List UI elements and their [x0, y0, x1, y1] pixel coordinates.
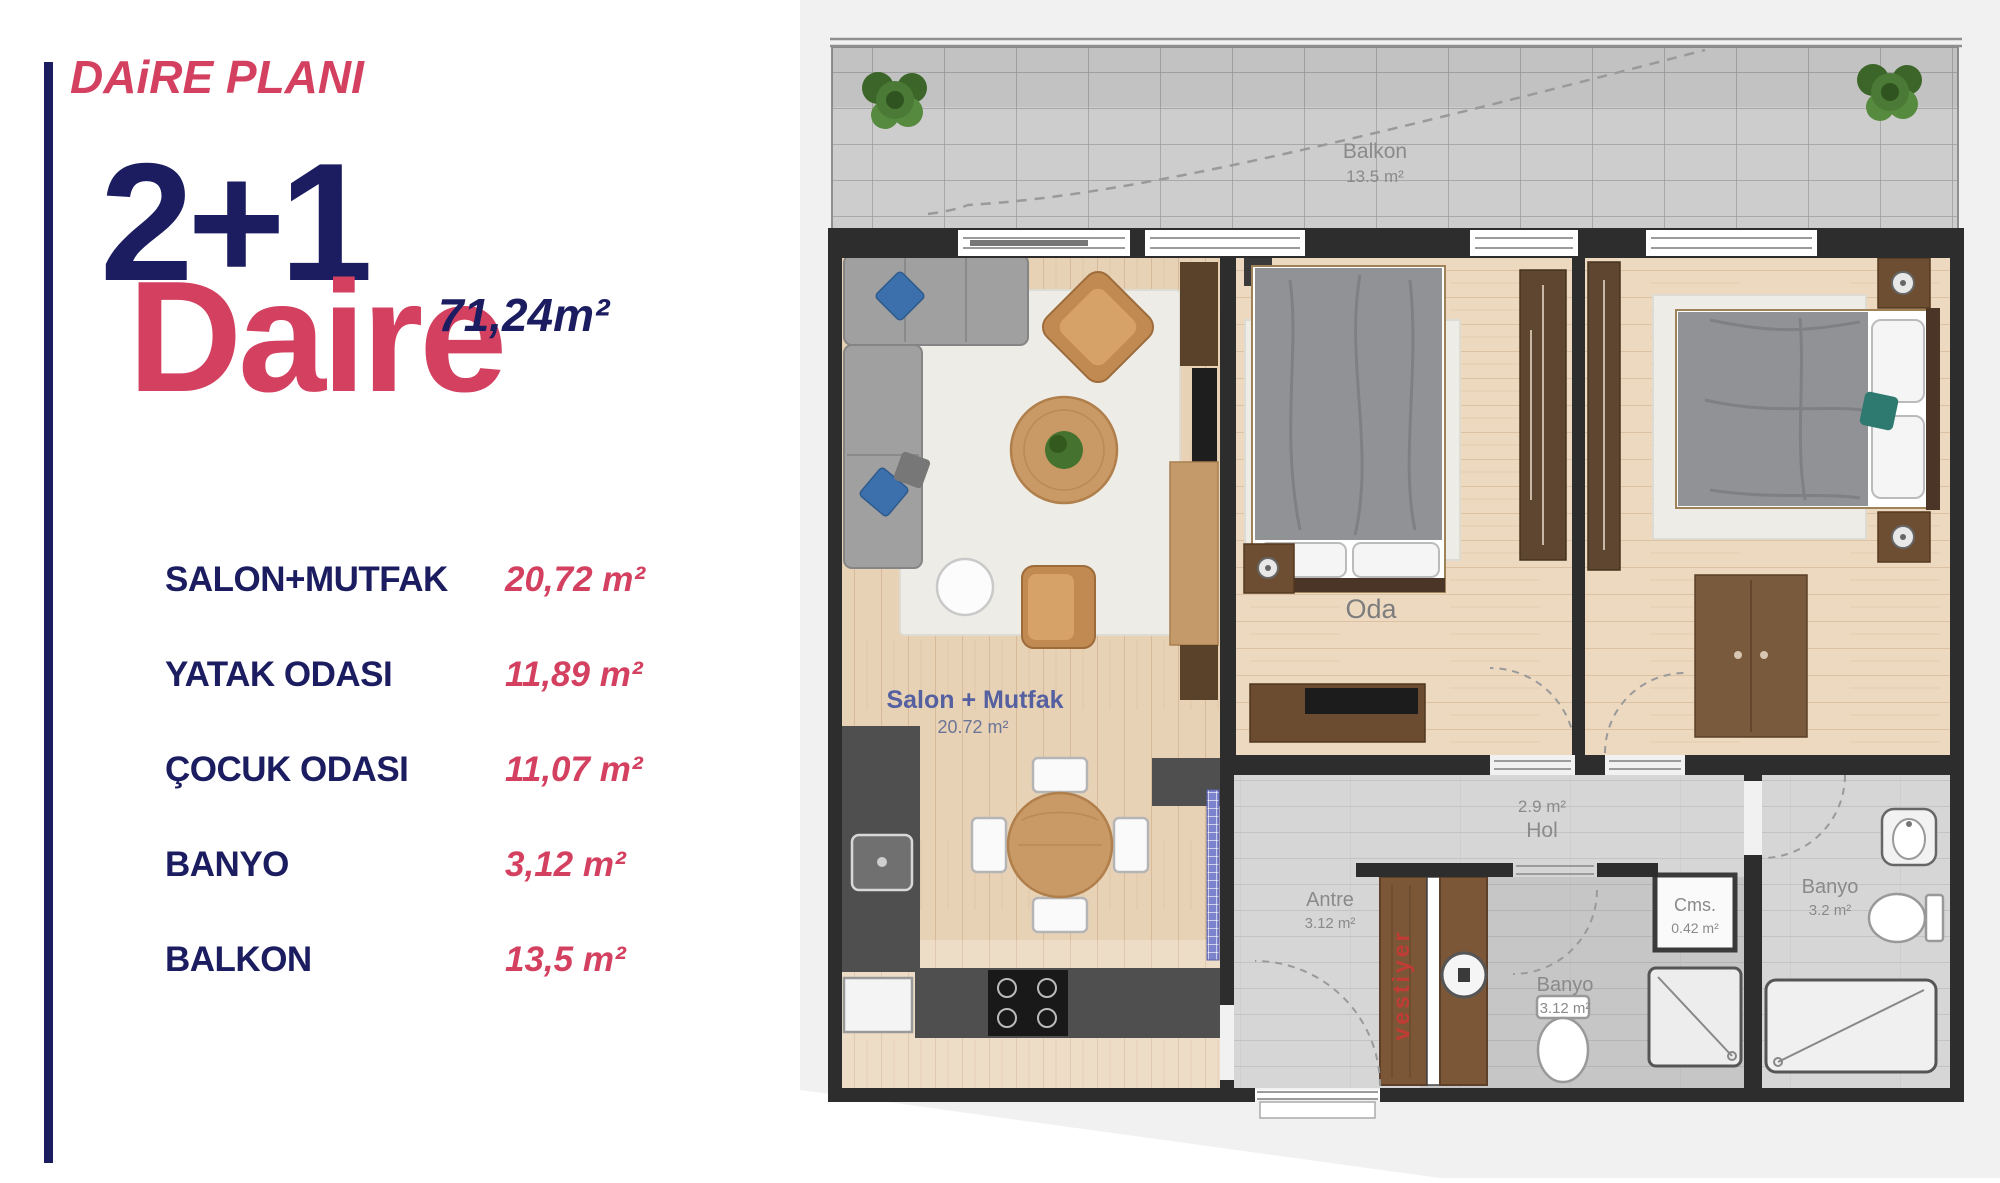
room-area: 3,12 m²: [505, 845, 626, 885]
vestiyer-label: vestiyer: [1388, 930, 1414, 1041]
closet-label: Cms.: [1674, 895, 1716, 915]
room-label: BALKON: [165, 940, 312, 980]
entry-label: Antre: [1306, 889, 1354, 911]
room-row-banyo: BANYO 3,12 m²: [165, 845, 725, 940]
balcony-area: 13.5 m²: [1346, 167, 1404, 186]
bath2-area-label: 3.2 m²: [1809, 902, 1852, 919]
sliding-door-panel: [970, 240, 1088, 246]
shower-icon: [1649, 968, 1741, 1066]
balcony-label: Balkon: [1343, 140, 1407, 163]
room-area: 11,07 m²: [505, 750, 643, 790]
bed: [1676, 308, 1940, 510]
chair: [972, 818, 1006, 872]
room-row-yatak: YATAK ODASI 11,89 m²: [165, 655, 725, 750]
dresser: [1695, 575, 1807, 737]
cabinet: [844, 978, 912, 1032]
chair: [1033, 898, 1087, 932]
balcony: Balkon 13.5 m²: [830, 39, 1962, 230]
desk: [1250, 684, 1425, 742]
nightstand: [1878, 512, 1930, 562]
toilet-icon: [1869, 894, 1943, 942]
oda-label: Oda: [1345, 594, 1397, 624]
chair: [1114, 818, 1148, 872]
headboard: [1926, 308, 1940, 510]
nightstand: [1878, 258, 1930, 308]
room-row-balkon: BALKON 13,5 m²: [165, 940, 725, 1035]
closet-area: 0.42 m²: [1671, 920, 1719, 936]
room-label: YATAK ODASI: [165, 655, 392, 695]
backsplash: [1207, 790, 1219, 960]
coffee-table: [1011, 397, 1117, 503]
total-area: 71,24m²: [438, 288, 609, 342]
stove: [988, 970, 1068, 1036]
chair: [1033, 758, 1087, 792]
cms-closet: Cms. 0.42 m²: [1655, 875, 1735, 950]
room-row-salon: SALON+MUTFAK 20,72 m²: [165, 560, 725, 655]
bath1-label: Banyo: [1537, 974, 1594, 996]
room-area: 11,89 m²: [505, 655, 643, 695]
floor-plan-panel: Balkon 13.5 m²: [800, 0, 2000, 1178]
living-area-label: 20.72 m²: [937, 717, 1008, 737]
tv: [1305, 688, 1418, 714]
nightstand: [1244, 544, 1294, 593]
entry-area-label: 3.12 m²: [1305, 915, 1356, 932]
room-list: SALON+MUTFAK 20,72 m² YATAK ODASI 11,89 …: [165, 560, 725, 1035]
room-row-cocuk: ÇOCUK ODASI 11,07 m²: [165, 750, 725, 845]
entrance-step: [1260, 1102, 1375, 1118]
hall-area-label: 2.9 m²: [1518, 797, 1567, 816]
room-label: SALON+MUTFAK: [165, 560, 448, 600]
pillow: [1353, 543, 1439, 577]
bed: [1250, 266, 1445, 592]
hall-label: Hol: [1526, 819, 1558, 842]
bath2-label: Banyo: [1802, 876, 1859, 898]
shower-icon: [1766, 980, 1936, 1072]
room-label: ÇOCUK ODASI: [165, 750, 408, 790]
tv: [1192, 368, 1217, 462]
bath1-area-label: 3.12 m²: [1540, 1000, 1591, 1017]
side-table: [937, 559, 993, 615]
accent-bar: [44, 62, 53, 1163]
pillow: [1859, 391, 1899, 431]
sink-icon: [1882, 809, 1936, 865]
lounge-chair: [1022, 566, 1095, 648]
room-area: 20,72 m²: [505, 560, 645, 600]
room-label: BANYO: [165, 845, 289, 885]
vestiyer-wardrobe: vestiyer: [1380, 877, 1487, 1085]
page-title: DAiRE PLANI: [70, 50, 364, 104]
living-label: Salon + Mutfak: [886, 686, 1063, 714]
room-area: 13,5 m²: [505, 940, 626, 980]
floor-plan: Balkon 13.5 m²: [800, 0, 2000, 1178]
info-panel: DAiRE PLANI 2+1 Daire 71,24m² SALON+MUTF…: [0, 0, 800, 1178]
pillow: [1872, 320, 1924, 402]
brochure-page: DAiRE PLANI 2+1 Daire 71,24m² SALON+MUTF…: [0, 0, 2000, 1178]
